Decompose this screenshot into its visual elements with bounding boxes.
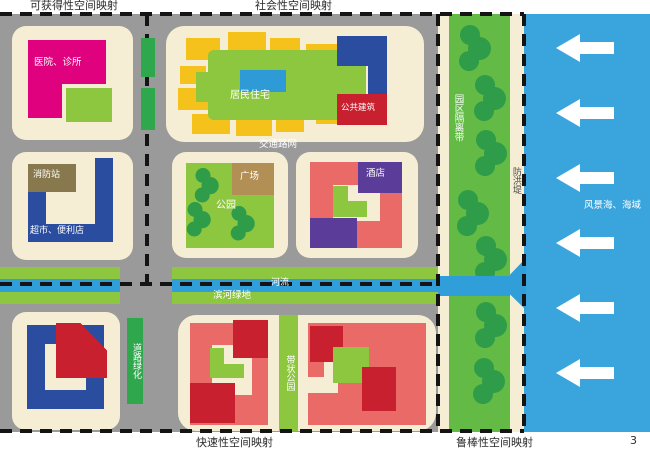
fire-station-block: 消防站 超市、便利店	[12, 152, 133, 260]
left-arrow-icon	[556, 359, 614, 391]
plaza-label: 广场	[240, 172, 259, 182]
hotel-label: 酒店	[366, 169, 385, 179]
public-building-label: 公共建筑	[341, 104, 375, 113]
road-greening-label: 道路绿化	[130, 343, 140, 379]
planning-diagram: 医院、诊所 居民住宅 公共建筑 消防站 超市、便利店	[0, 0, 650, 452]
housing-piece	[228, 32, 266, 52]
park-label: 公园	[216, 200, 236, 211]
residential-block: 居民住宅 公共建筑	[166, 26, 424, 142]
residential-center	[240, 70, 286, 92]
tree-icon	[456, 190, 490, 236]
dike-label: 防洪堤	[510, 167, 520, 194]
river-dashed-line	[0, 282, 438, 286]
tree-icon	[472, 358, 506, 404]
hotel-block: 酒店	[296, 152, 418, 258]
hotel-annex	[310, 218, 357, 248]
south-block: 带状公园	[178, 315, 436, 431]
housing-red	[233, 320, 268, 358]
supermarket-label: 超市、便利店	[30, 227, 84, 237]
left-arrow-icon	[556, 294, 614, 326]
riverside-green-band	[172, 267, 438, 279]
tree-icon	[230, 206, 256, 241]
left-arrow-icon	[556, 164, 614, 196]
tree-icon	[194, 168, 220, 203]
river-crossing	[438, 276, 510, 296]
quadrant-top-left-label: 可获得性空间映射	[30, 0, 118, 12]
green-plot	[210, 364, 244, 378]
hospital-block: 医院、诊所	[12, 26, 133, 140]
tree-icon	[186, 202, 212, 237]
green-plot	[333, 201, 367, 217]
linear-park-label: 带状公园	[284, 355, 294, 391]
supermarket-building	[28, 192, 46, 224]
tree-icon	[474, 130, 508, 176]
linear-park-strip: 带状公园	[279, 315, 298, 431]
southwest-block	[12, 312, 120, 430]
road-median-green	[141, 38, 155, 77]
green-plot	[337, 66, 362, 92]
hospital-building	[28, 82, 62, 118]
housing-red	[362, 367, 396, 411]
sea-label: 风景海、海域	[584, 201, 641, 211]
public-building-blue	[368, 64, 387, 96]
tree-icon	[458, 25, 492, 71]
river-label: 河流	[271, 279, 289, 289]
tree-icon	[473, 75, 507, 121]
green-belt-label: 园区隔离带	[452, 94, 462, 142]
belt-divider-dashed-line	[436, 14, 440, 430]
riverside-green-band	[172, 292, 438, 304]
page-number: 3	[630, 435, 637, 447]
road-median-green	[141, 88, 155, 130]
left-arrow-icon	[556, 34, 614, 66]
left-arrow-icon	[556, 229, 614, 261]
tree-icon	[474, 302, 508, 348]
road-network-label: 交通路网	[259, 140, 297, 150]
residential-green	[196, 72, 214, 102]
housing-red	[190, 383, 235, 423]
bottom-boundary-dashed-line	[0, 429, 524, 433]
left-arrow-icon	[556, 99, 614, 131]
quadrant-bottom-right-label: 鲁棒性空间映射	[456, 437, 533, 449]
riverside-green-band	[0, 267, 120, 279]
sea-divider-dashed-line	[522, 14, 526, 430]
public-building-blue	[337, 36, 387, 66]
residential-label: 居民住宅	[230, 90, 270, 101]
riverside-green-band	[0, 292, 120, 304]
riverside-green-label: 滨河绿地	[213, 291, 251, 301]
park-block: 广场 公园	[172, 152, 288, 258]
hospital-label: 医院、诊所	[34, 58, 82, 68]
fire-station-label: 消防站	[33, 171, 60, 181]
quadrant-top-right-label: 社会性空间映射	[255, 0, 332, 12]
green-plot	[66, 88, 112, 122]
housing-piece	[236, 118, 272, 136]
road-greening-strip: 道路绿化	[127, 318, 143, 404]
top-boundary-dashed-line	[0, 12, 524, 16]
quadrant-bottom-left-label: 快速性空间映射	[196, 437, 273, 449]
